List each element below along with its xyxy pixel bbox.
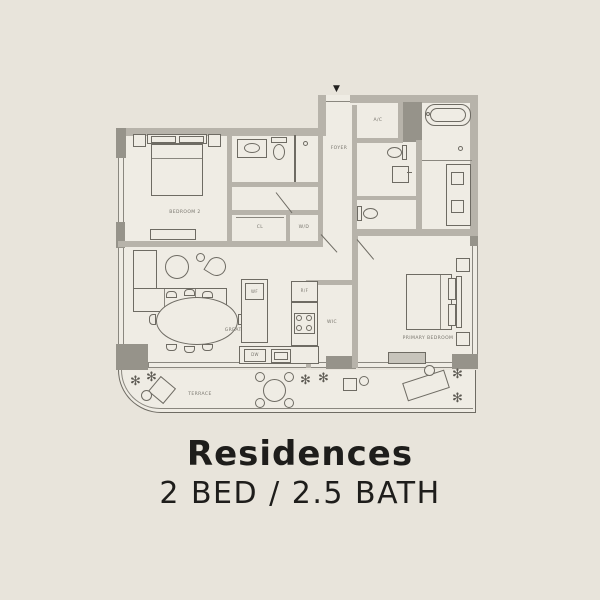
shaft-block [400, 102, 422, 142]
column-bottom-left [116, 344, 148, 370]
dining-chair [184, 346, 195, 353]
wall-powder-wc-divider [354, 196, 416, 200]
column-left-top [116, 128, 126, 158]
wic-label: WIC [311, 320, 353, 325]
primary-bedroom-label: PRIMARY BEDROOM [386, 336, 470, 341]
wall-primary-left [352, 236, 358, 368]
plant-icon: ✻ [300, 374, 311, 387]
bath2-toilet-tank [271, 137, 287, 143]
shower-head-icon [303, 141, 308, 146]
plan-title: Residences [0, 434, 600, 474]
wine-fridge-label: WF [245, 289, 264, 294]
wall-bedroom2-right [227, 132, 232, 246]
wall-right-upper [470, 95, 478, 237]
bath2-sink [244, 143, 260, 153]
dining-chair [202, 291, 213, 298]
primary-bed-pillow [448, 304, 456, 326]
primary-bench [388, 352, 426, 364]
side-table [196, 253, 205, 262]
kitchen-sink-basin [274, 352, 288, 360]
wall-bath2-bottom [232, 182, 322, 187]
bed2-pillow [151, 136, 176, 143]
dishwasher-label: DW [244, 352, 266, 357]
primary-nightstand [456, 258, 470, 272]
stove-burner [296, 325, 302, 331]
closet-label: CL [236, 225, 284, 230]
terrace-chair [255, 372, 265, 382]
bed2-pillow [179, 136, 204, 143]
wall-closet-top [232, 210, 322, 215]
entry-threshold-line [326, 101, 350, 102]
powder-sink [392, 166, 409, 183]
terrace-side-table [141, 390, 152, 401]
bathtub-inner [430, 108, 466, 122]
wall-mid-horizontal [118, 241, 322, 247]
closet-rod-line [236, 217, 284, 218]
wall-powder-right [416, 140, 422, 235]
shower-head-icon [458, 146, 463, 151]
terrace-chair [255, 398, 265, 408]
primary-bed-pillow [448, 278, 456, 300]
plant-icon: ✻ [130, 375, 141, 388]
bed2-nightstand [208, 134, 221, 147]
primary-bed-headboard [456, 276, 462, 328]
washer-dryer-label: W/D [288, 225, 320, 230]
dining-chair [202, 344, 213, 351]
terrace-chair [284, 398, 294, 408]
ac-label: A/C [356, 118, 400, 123]
terrace-chair [284, 372, 294, 382]
plant-icon: ✻ [318, 372, 329, 385]
terrace-small-table [359, 376, 369, 386]
dining-chair [184, 289, 195, 296]
dining-chair [166, 291, 177, 298]
wall-shower-divider [294, 135, 296, 182]
plant-icon: ✻ [452, 368, 463, 381]
primary-bath-divider-line [422, 160, 472, 161]
powder-toilet-tank [402, 145, 407, 160]
terrace-label: TERRACE [170, 392, 230, 397]
dining-table [156, 297, 238, 345]
wc-toilet-tank [357, 206, 362, 221]
primary-sink [451, 200, 464, 213]
floorplan-page: ▼ BEDROOM 2 CL W/D FOYER A/C [0, 0, 600, 600]
dining-chair [166, 344, 177, 351]
wc-toilet-bowl [363, 208, 378, 219]
dining-chair [149, 314, 156, 325]
window-right [472, 237, 478, 363]
coffee-table [165, 255, 189, 279]
stove-burner [296, 315, 302, 321]
wall-ac-bottom [352, 138, 402, 143]
fridge-label: R/F [291, 288, 318, 293]
terrace-chaise-table [424, 365, 435, 376]
plant-icon: ✻ [452, 392, 463, 405]
bed2-nightstand [133, 134, 146, 147]
bathtub-faucet [426, 112, 430, 116]
powder-faucet-line [407, 172, 412, 173]
bath2-toilet-bowl [273, 144, 285, 160]
wall-bathrow-bottom [352, 229, 478, 236]
bed2-mattress [151, 144, 203, 196]
terrace-dining-table [263, 379, 286, 402]
primary-sink [451, 172, 464, 185]
foyer-label: FOYER [320, 146, 358, 151]
entry-arrow-icon: ▼ [333, 85, 340, 94]
stove-burner [306, 325, 312, 331]
plant-icon: ✻ [146, 371, 157, 384]
plan-subtitle: 2 BED / 2.5 BATH [0, 476, 600, 511]
bed2-dresser [150, 229, 196, 240]
window-left [118, 156, 124, 346]
terrace-small-chair [343, 378, 357, 391]
powder-toilet-bowl [387, 147, 402, 158]
primary-bed-blanket-line [440, 275, 441, 329]
bed2-blanket-line [152, 158, 202, 159]
bedroom2-label: BEDROOM 2 [145, 210, 225, 215]
primary-bed-mattress [406, 274, 452, 330]
